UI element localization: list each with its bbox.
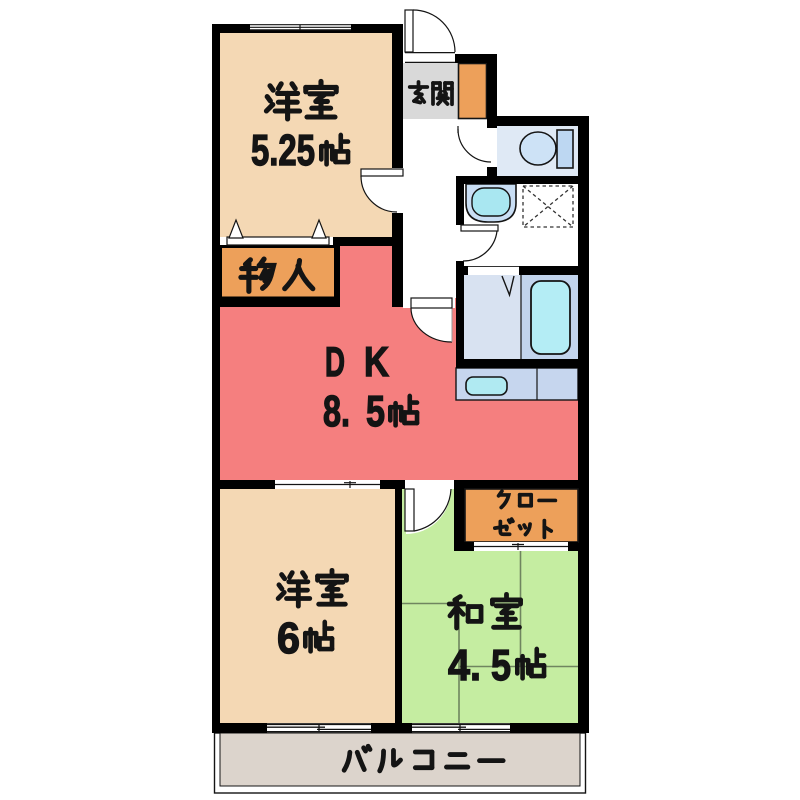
svg-text:D: D [325,338,345,385]
svg-text:5: 5 [366,387,385,436]
svg-text:4.: 4. [448,641,481,690]
svg-text:5: 5 [491,641,511,690]
svg-text:8.: 8. [323,387,350,436]
svg-text:5.25: 5.25 [251,126,315,175]
svg-text:K: K [364,338,389,385]
svg-text:6: 6 [277,614,300,663]
